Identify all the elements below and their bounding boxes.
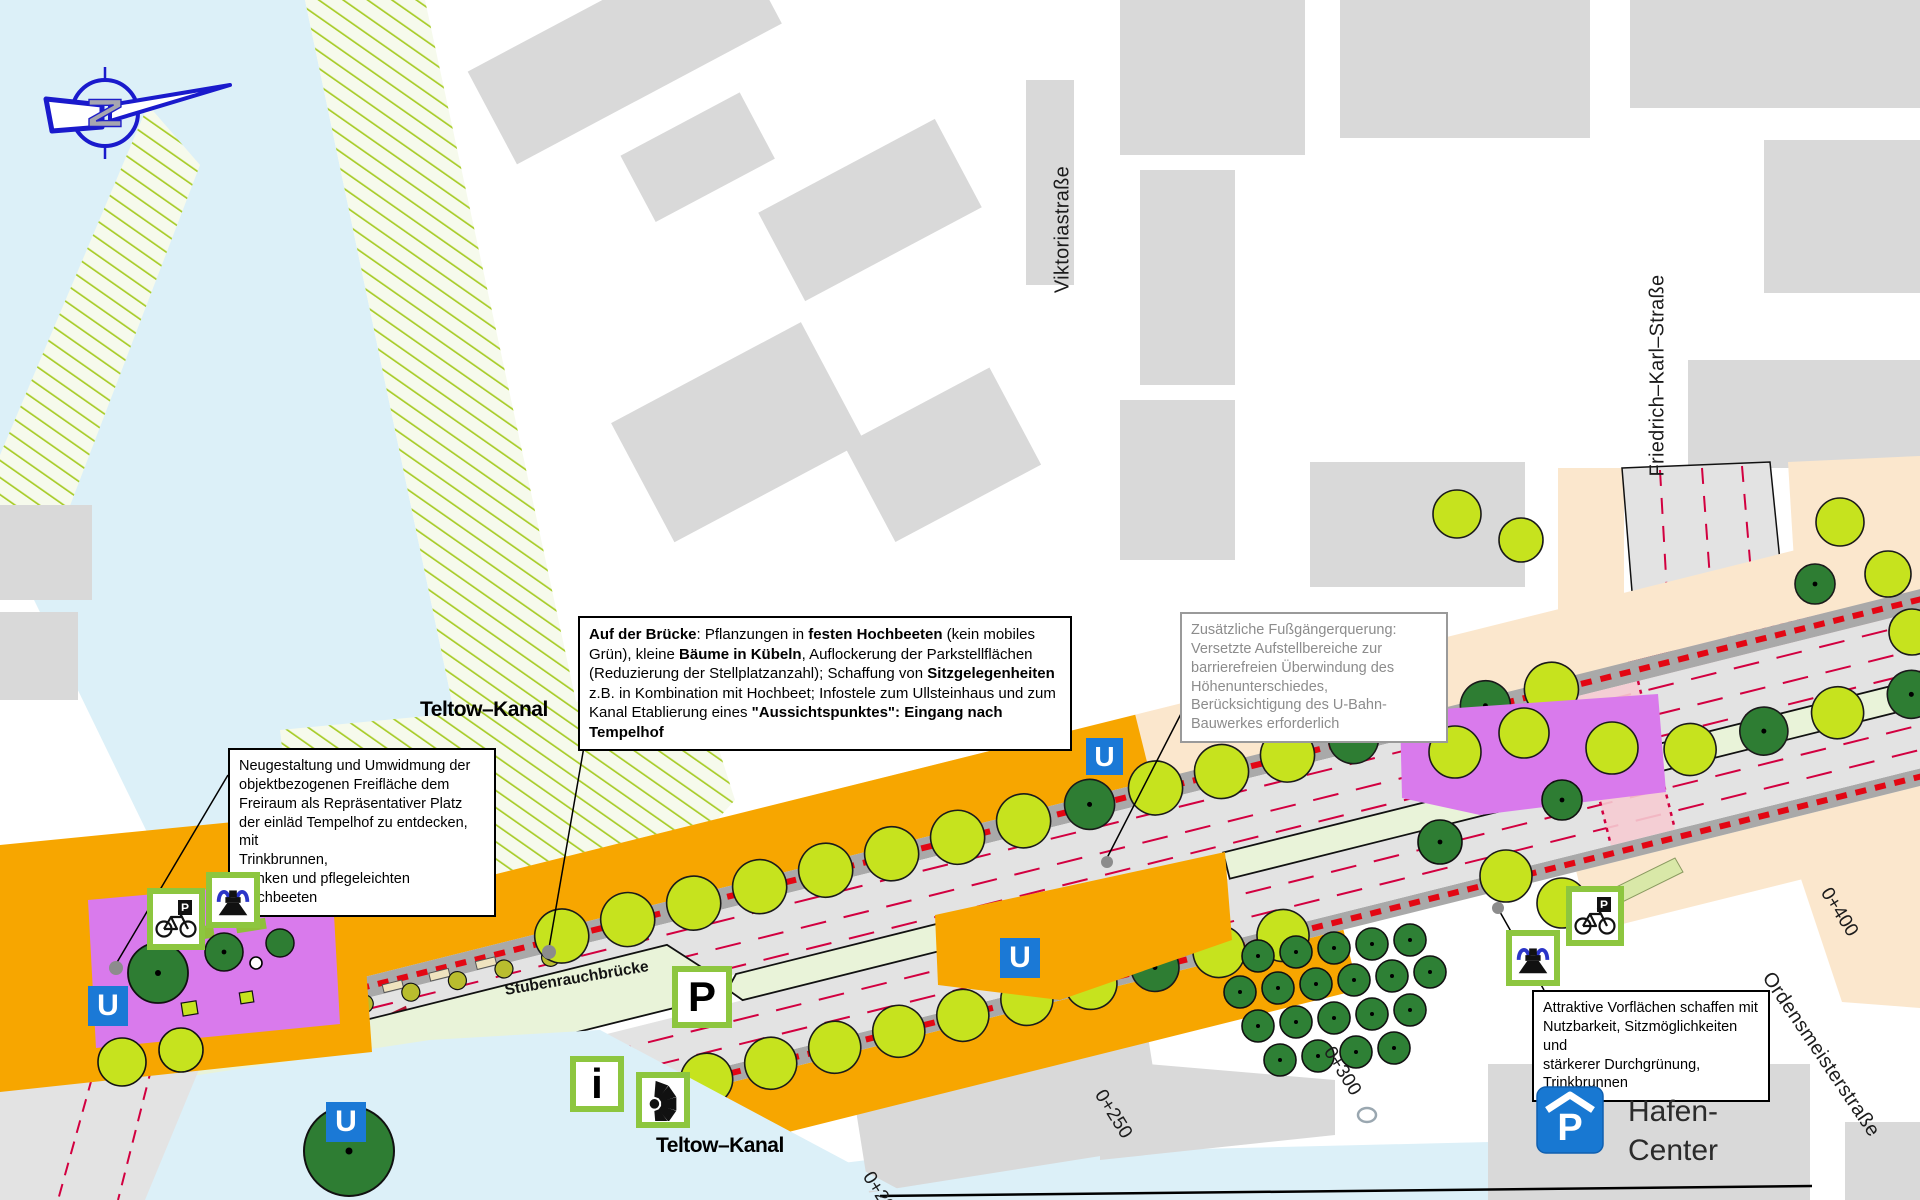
ubahn-station-icon: U	[1000, 938, 1040, 978]
ubahn-station-icon: U	[326, 1102, 366, 1142]
canal-label-lower: Teltow–Kanal	[656, 1134, 784, 1158]
covered-parking-icon: P	[1536, 1086, 1604, 1154]
drinking-fountain-icon	[1506, 930, 1560, 986]
parking-icon: P	[672, 966, 732, 1028]
parking-letter: P	[688, 976, 716, 1018]
ubahn-letter: U	[97, 989, 119, 1023]
info-stele-icon: i	[570, 1056, 624, 1112]
drinking-fountain-icon	[206, 872, 260, 928]
hafen-center-line2: Center	[1628, 1131, 1718, 1170]
street-label-friedrich-karl: Friedrich–Karl–Straße	[1647, 256, 1670, 496]
ubahn-station-icon: U	[1086, 738, 1123, 775]
chainage-circle	[1358, 1108, 1376, 1122]
ubahn-letter: U	[1094, 741, 1114, 773]
hafen-parking-letter: P	[1557, 1107, 1582, 1149]
street-label-viktoriastrasse: Viktoriastraße	[1052, 130, 1075, 330]
ubahn-station-icon: U	[88, 986, 128, 1026]
info-letter: i	[591, 1063, 603, 1105]
hafen-center-label: Hafen- Center	[1628, 1092, 1718, 1170]
planning-map: N Teltow–Kanal Teltow–Kanal Stubenrauchb…	[0, 0, 1920, 1200]
viewpoint-icon	[636, 1072, 690, 1128]
annotation-plaza: Neugestaltung und Umwidmung der objektbe…	[228, 748, 496, 917]
compass-letter: N	[79, 96, 131, 129]
annotation-bridge: Auf der Brücke: Pflanzungen in festen Ho…	[578, 616, 1072, 751]
annotation-crossing: Zusätzliche Fußgängerquerung: Versetzte …	[1180, 612, 1448, 743]
hafen-center-line1: Hafen-	[1628, 1092, 1718, 1131]
bicycle-parking-icon: P	[147, 888, 205, 950]
bicycle-parking-icon: P	[1566, 886, 1624, 946]
ubahn-letter: U	[335, 1105, 357, 1139]
canal-label-upper: Teltow–Kanal	[420, 698, 548, 722]
north-compass-icon: N	[40, 55, 240, 175]
ubahn-letter: U	[1009, 941, 1031, 975]
